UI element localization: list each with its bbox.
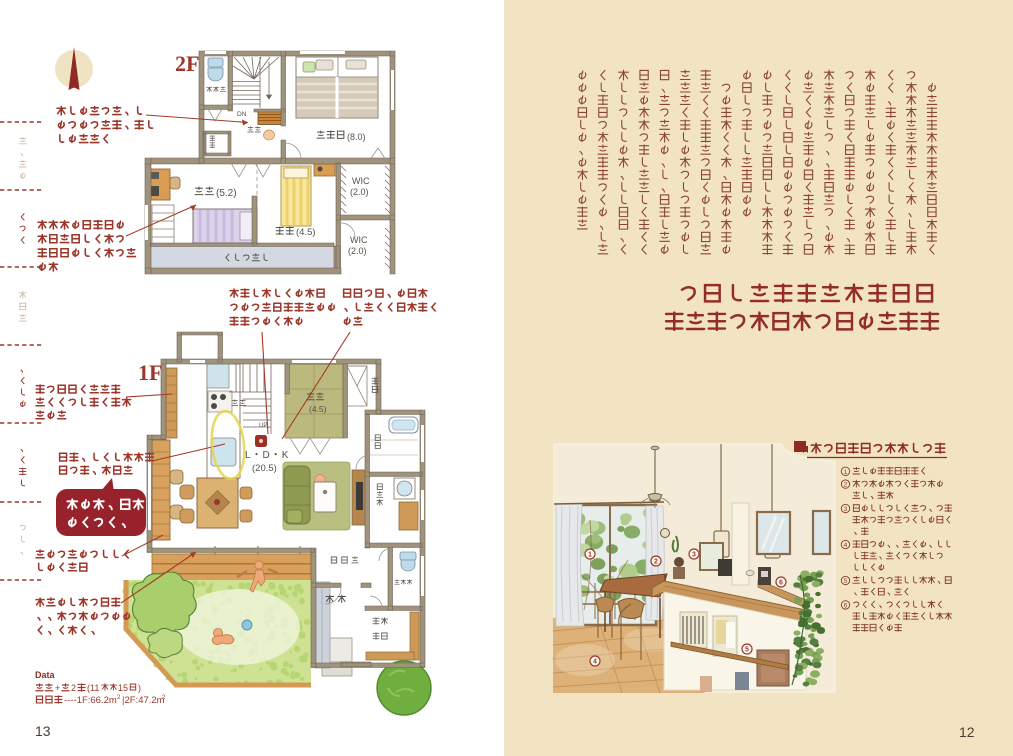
svg-text:UP: UP: [259, 423, 267, 429]
svg-text:(20.5): (20.5): [252, 463, 277, 474]
svg-text:(2.0): (2.0): [348, 246, 367, 256]
svg-text:6: 6: [779, 580, 783, 587]
svg-text:6: 6: [844, 602, 848, 609]
svg-text:5: 5: [745, 647, 749, 654]
svg-text:3: 3: [844, 506, 848, 513]
svg-text:1F: 1F: [138, 360, 162, 385]
svg-text:(4.5): (4.5): [309, 404, 327, 414]
svg-text:(11: (11: [87, 683, 99, 693]
svg-text:): ): [138, 683, 141, 693]
svg-text:12: 12: [959, 724, 975, 740]
svg-text:2: 2: [117, 695, 121, 701]
svg-text:4: 4: [844, 542, 848, 549]
svg-text:(4.5): (4.5): [296, 227, 316, 238]
svg-text:+: +: [55, 683, 60, 693]
svg-text:----1F:66.2m: ----1F:66.2m: [64, 695, 117, 706]
svg-text:(2.0): (2.0): [350, 187, 369, 197]
svg-text:DN: DN: [237, 111, 247, 118]
svg-text:WIC: WIC: [352, 176, 370, 186]
svg-text:1: 1: [844, 469, 848, 476]
svg-text:WIC: WIC: [350, 235, 368, 245]
svg-text:2: 2: [71, 683, 76, 693]
svg-text:Data: Data: [35, 670, 56, 680]
svg-text:1: 1: [588, 552, 592, 559]
svg-text:3: 3: [692, 552, 696, 559]
svg-text:2: 2: [844, 482, 848, 489]
svg-text:4: 4: [593, 659, 597, 666]
svg-text:5: 5: [844, 578, 848, 585]
svg-text:2: 2: [162, 695, 166, 701]
svg-text:15: 15: [118, 683, 128, 693]
svg-text:2F: 2F: [175, 51, 199, 76]
svg-text:(8.0): (8.0): [347, 132, 366, 142]
svg-text:(5.2): (5.2): [216, 188, 237, 199]
svg-text:L・D・K: L・D・K: [245, 450, 289, 461]
svg-text:2: 2: [654, 559, 658, 566]
svg-text:|2F:47.2m: |2F:47.2m: [122, 695, 165, 706]
svg-text:13: 13: [35, 723, 51, 739]
